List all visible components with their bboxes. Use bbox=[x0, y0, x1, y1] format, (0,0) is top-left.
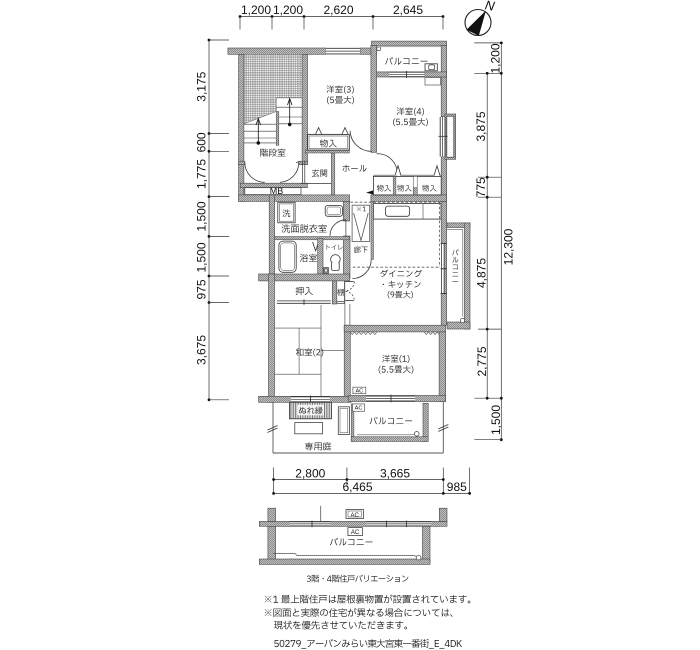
svg-text:3,175: 3,175 bbox=[195, 71, 209, 101]
svg-text:2,620: 2,620 bbox=[323, 3, 353, 17]
svg-text:AC: AC bbox=[355, 406, 363, 412]
svg-text:2,645: 2,645 bbox=[393, 3, 423, 17]
svg-text:AC: AC bbox=[351, 530, 360, 536]
svg-text:2,775: 2,775 bbox=[475, 346, 489, 376]
svg-text:600: 600 bbox=[195, 132, 209, 152]
svg-text:4,875: 4,875 bbox=[475, 258, 489, 288]
svg-text:3,675: 3,675 bbox=[195, 335, 209, 365]
svg-text:775: 775 bbox=[474, 177, 488, 197]
svg-text:3,665: 3,665 bbox=[380, 466, 410, 480]
svg-text:1,500: 1,500 bbox=[489, 405, 503, 435]
svg-text:6,465: 6,465 bbox=[342, 480, 372, 494]
svg-text:3,875: 3,875 bbox=[474, 111, 488, 141]
svg-text:2,800: 2,800 bbox=[295, 466, 325, 480]
svg-text:MB: MB bbox=[270, 186, 284, 196]
svg-text:12,300: 12,300 bbox=[502, 228, 516, 265]
svg-text:1,200: 1,200 bbox=[241, 3, 271, 17]
svg-text:1,775: 1,775 bbox=[195, 159, 209, 189]
svg-text:975: 975 bbox=[195, 279, 209, 299]
svg-text:1,500: 1,500 bbox=[195, 201, 209, 231]
svg-text:AC: AC bbox=[355, 388, 363, 394]
svg-text:1,200: 1,200 bbox=[489, 43, 503, 73]
svg-text:1,200: 1,200 bbox=[273, 3, 303, 17]
svg-text:AC: AC bbox=[351, 513, 360, 519]
svg-text:985: 985 bbox=[447, 480, 467, 494]
svg-text:1,500: 1,500 bbox=[195, 242, 209, 272]
